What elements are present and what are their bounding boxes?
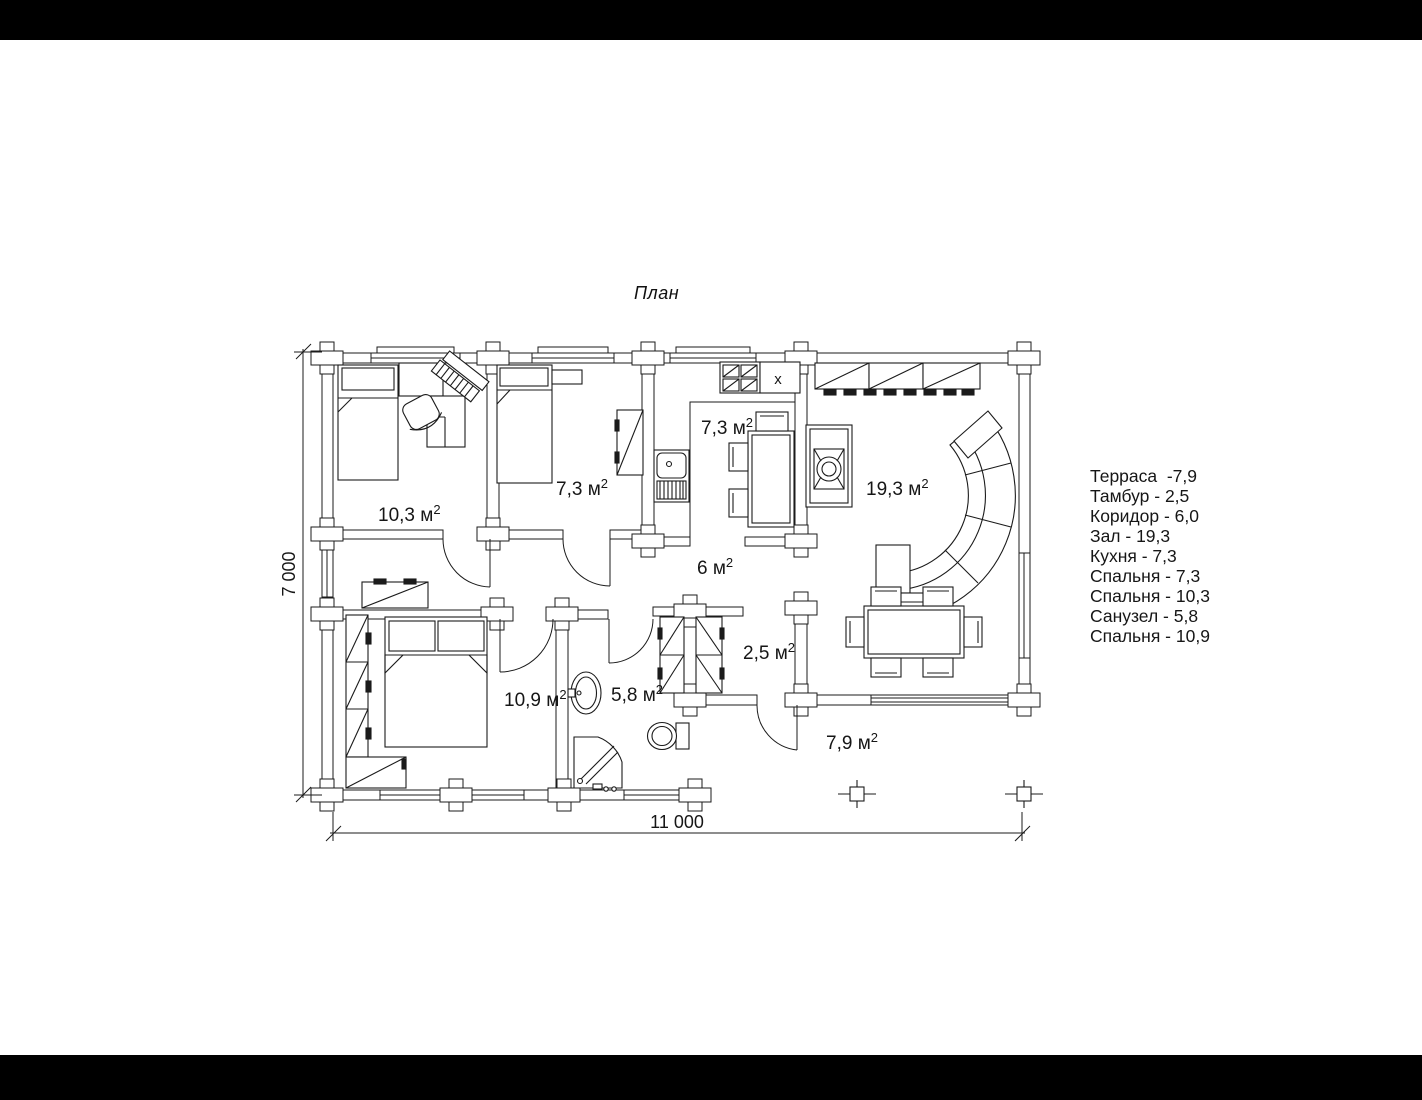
bed-double [385,617,487,747]
dimension-width-label: 11 000 [650,812,704,832]
stove [720,362,760,393]
door-bedroom-10-9 [500,619,553,672]
bed-single-2 [497,365,552,483]
room-label-kitchen-7-3: 7,3 м2 [701,415,753,439]
kitchen-chair-left-1 [729,443,748,471]
bed-single-1 [338,365,398,480]
log-joint [311,607,343,621]
log-joint [785,601,817,615]
room-label-hall-19-3: 19,3 м2 [866,476,929,500]
sideboard-corridor [362,579,428,608]
kitchen-chair-top [756,412,788,431]
room-label-bathroom-5-8: 5,8 м2 [611,682,663,706]
furniture-layer [338,350,1015,791]
dining-table [864,606,964,658]
dining-chair-bottom-1 [871,658,901,677]
washbasin [568,672,601,714]
kitchen-table [748,431,794,527]
kitchen-x-marker: x [774,371,782,388]
dimension-height-label: 7 000 [279,551,299,596]
terrace-columns [838,780,1043,808]
wall-corridor-top-a [333,530,443,539]
log-joint [674,604,706,618]
kitchen-sink [654,450,689,502]
window-top-3 [670,347,756,363]
door-bathroom [609,619,653,663]
log-joint [632,534,664,548]
dining-chair-top-1 [871,587,901,606]
log-joint [1008,693,1040,707]
log-joint [477,527,509,541]
log-joint [679,788,711,802]
kitchen-chair-left-2 [729,489,748,517]
column-marker [838,780,876,808]
log-joint [785,534,817,548]
window-right [1019,553,1030,658]
toilet [648,723,690,750]
room-label-terrace-7-9: 7,9 м2 [826,730,878,754]
column-marker [1005,780,1043,808]
room-label-bedroom-7-3: 7,3 м2 [556,476,608,500]
log-joint [632,351,664,365]
door-tambour-terrace [757,705,797,750]
log-joint [674,693,706,707]
dining-chair-left [846,617,864,647]
log-joint [311,527,343,541]
wall-bed2-kitchen [642,353,654,546]
window-bottom-3 [624,790,682,800]
nightstand-2 [552,370,582,384]
door-bedroom-10-3 [443,539,490,587]
log-joint [477,351,509,365]
room-label-bedroom-10-3: 10,3 м2 [378,502,441,526]
dining-chair-top-2 [923,587,953,606]
room-label-tambour-2-5: 2,5 м2 [743,640,795,664]
closet-tambour-side [696,617,724,693]
log-joint [546,607,578,621]
room-label-corridor-6: 6 м2 [697,555,733,579]
window-top-2 [532,347,614,363]
window-bottom-2 [468,790,524,800]
wardrobe-corner-bedroom3 [346,757,406,788]
floor-plan-drawing: 7 000 11 000 x 10,3 м27,3 м27,3 м219,3 м… [0,0,1422,1100]
window-hall-bottom [871,695,1010,705]
wardrobe-bedroom2 [615,410,643,475]
door-bedroom-7-3 [563,539,610,586]
room-label-bedroom-10-9: 10,9 м2 [504,687,567,711]
log-joint [548,788,580,802]
log-joint [311,351,343,365]
dining-chair-right [964,617,982,647]
fireplace [806,425,852,507]
dining-chair-bottom-2 [923,658,953,677]
log-joint [440,788,472,802]
hall-cabinets [815,363,980,395]
log-joint [785,693,817,707]
wardrobe-column-bedroom3 [346,615,371,757]
window-bottom-1 [380,790,444,800]
log-joint [1008,351,1040,365]
window-left [322,548,333,597]
screenshot: План Терраса -7,9Тамбур - 2,5Коридор - 6… [0,0,1422,1100]
shower [574,737,622,791]
